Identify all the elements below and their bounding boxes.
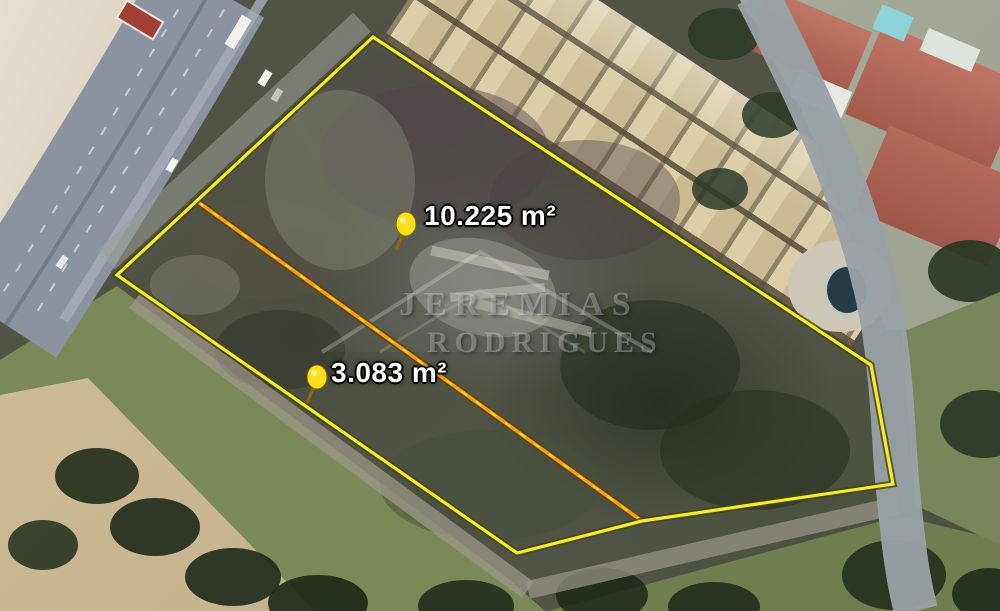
satellite-map[interactable]: JEREMIAS RODRIGUES	[0, 0, 1000, 611]
measurement-label[interactable]: 3.083 m²	[331, 357, 447, 389]
map-overlay	[0, 0, 1000, 611]
measurement-label[interactable]: 10.225 m²	[424, 200, 556, 232]
pushpin-icon[interactable]	[396, 212, 416, 250]
watermark-logo-icon	[322, 252, 652, 352]
pushpin-icon[interactable]	[307, 365, 327, 403]
vehicle	[257, 69, 272, 87]
dirt-road	[528, 505, 898, 590]
